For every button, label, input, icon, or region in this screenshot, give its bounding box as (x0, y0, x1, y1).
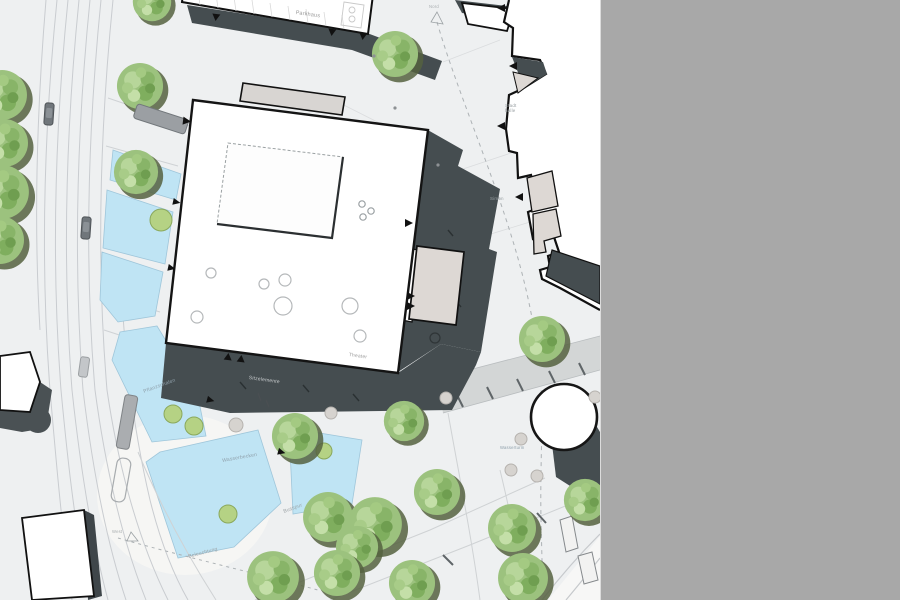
main-building (166, 100, 428, 373)
annex-east-building (409, 246, 464, 325)
courtyard (217, 143, 343, 238)
site-plan-drawing (0, 0, 600, 600)
screenshot: Parkhaus Stadt halle Simon Theater Sitze… (0, 0, 900, 600)
label-simon: Simon (490, 196, 504, 201)
gray-side-panel (600, 0, 900, 600)
label-wasserturm: Wasserturm (500, 446, 524, 451)
label-west: West (112, 530, 122, 535)
east-beige-building-1 (527, 171, 558, 212)
southwest-building-b (22, 510, 102, 600)
label-stadthalle: Stadt halle (505, 103, 517, 113)
label-nord: Nord (429, 5, 439, 10)
site-plan: Parkhaus Stadt halle Simon Theater Sitze… (0, 0, 600, 600)
